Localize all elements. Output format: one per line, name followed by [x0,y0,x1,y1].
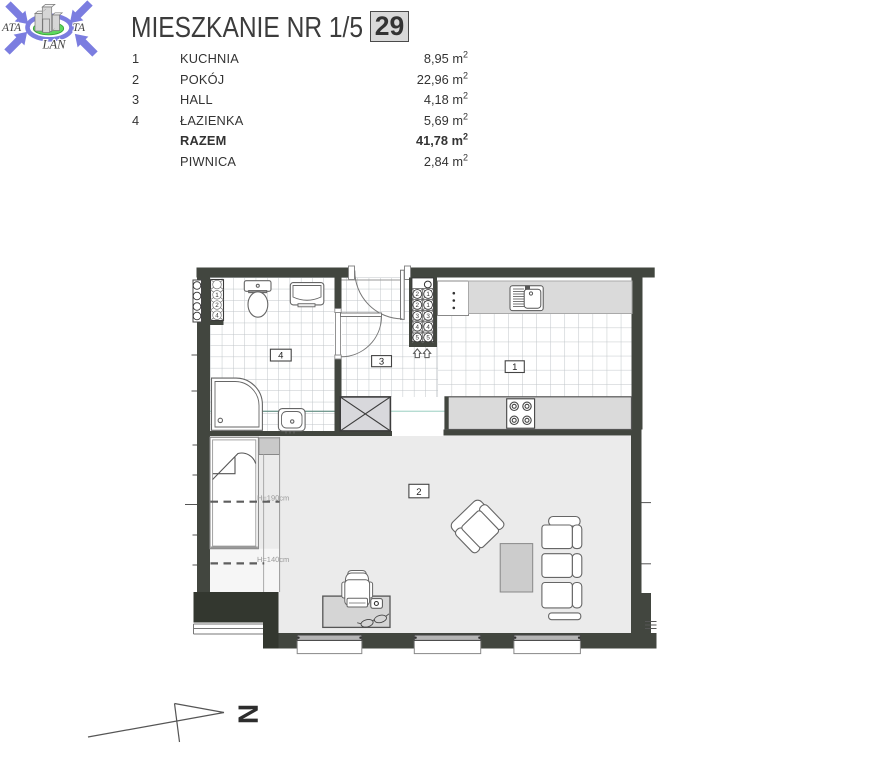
svg-text:2: 2 [416,291,420,298]
svg-text:H=190cm: H=190cm [257,494,289,503]
svg-text:3: 3 [416,313,420,320]
svg-text:1: 1 [215,292,219,299]
svg-text:3: 3 [426,313,430,320]
svg-text:N: N [233,704,264,724]
svg-text:4: 4 [215,312,219,319]
svg-text:5: 5 [416,335,420,342]
svg-text:4: 4 [426,324,430,331]
svg-text:4: 4 [278,351,283,362]
svg-text:1: 1 [512,362,517,373]
svg-text:1: 1 [426,291,430,298]
svg-text:2: 2 [215,302,219,309]
svg-text:2: 2 [416,487,421,498]
svg-text:1: 1 [426,302,430,309]
svg-text:H=140cm: H=140cm [257,555,289,564]
svg-text:5: 5 [426,335,430,342]
svg-text:3: 3 [379,357,384,368]
svg-text:2: 2 [416,302,420,309]
svg-text:4: 4 [416,324,420,331]
